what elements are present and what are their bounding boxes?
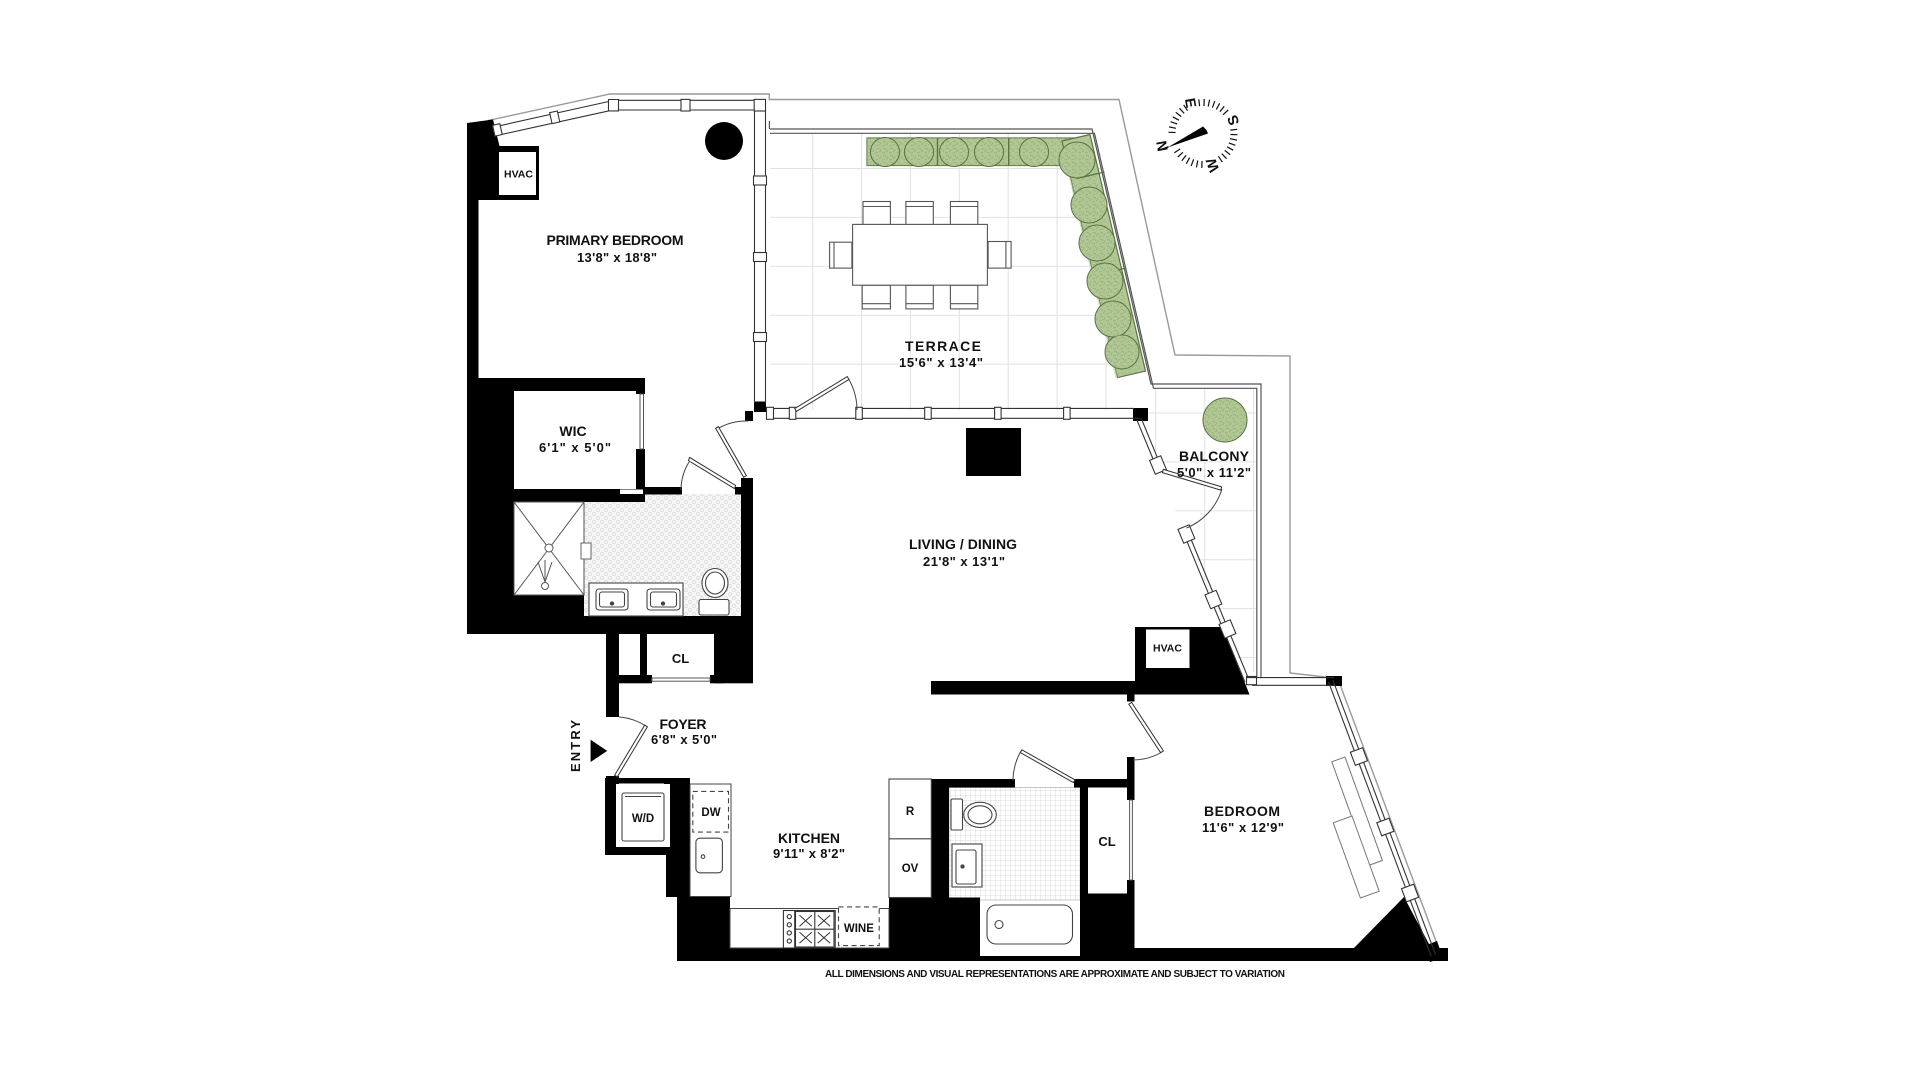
svg-text:KITCHEN: KITCHEN: [778, 830, 840, 846]
svg-text:6'8" x 5'0": 6'8" x 5'0": [651, 732, 717, 747]
svg-text:WINE: WINE: [844, 923, 874, 935]
svg-text:6'1" x 5'0": 6'1" x 5'0": [539, 440, 611, 455]
svg-text:WIC: WIC: [559, 423, 586, 439]
svg-text:CL: CL: [672, 651, 689, 666]
svg-text:21'8" x 13'1": 21'8" x 13'1": [923, 554, 1005, 569]
svg-text:ENTRY: ENTRY: [568, 720, 583, 772]
svg-text:PRIMARY BEDROOM: PRIMARY BEDROOM: [547, 232, 684, 248]
svg-text:9'11" x 8'2": 9'11" x 8'2": [773, 846, 845, 861]
svg-text:5'0" x 11'2": 5'0" x 11'2": [1177, 465, 1251, 480]
svg-text:ALL DIMENSIONS AND VISUAL REPR: ALL DIMENSIONS AND VISUAL REPRESENTATION…: [825, 969, 1285, 980]
svg-text:OV: OV: [902, 863, 919, 875]
svg-text:DW: DW: [701, 807, 720, 819]
svg-text:W/D: W/D: [632, 813, 654, 825]
svg-text:BALCONY: BALCONY: [1179, 448, 1250, 464]
svg-text:FOYER: FOYER: [660, 716, 707, 732]
svg-text:CL: CL: [1098, 834, 1115, 849]
svg-text:13'8" x 18'8": 13'8" x 18'8": [577, 250, 657, 265]
svg-text:LIVING / DINING: LIVING / DINING: [909, 536, 1017, 552]
svg-text:11'6" x 12'9": 11'6" x 12'9": [1202, 820, 1284, 835]
svg-text:15'6" x 13'4": 15'6" x 13'4": [899, 355, 983, 370]
svg-text:HVAC: HVAC: [504, 169, 533, 181]
svg-text:HVAC: HVAC: [1153, 643, 1182, 655]
svg-text:TERRACE: TERRACE: [905, 338, 981, 354]
svg-text:R: R: [906, 806, 915, 818]
svg-text:BEDROOM: BEDROOM: [1204, 803, 1280, 819]
